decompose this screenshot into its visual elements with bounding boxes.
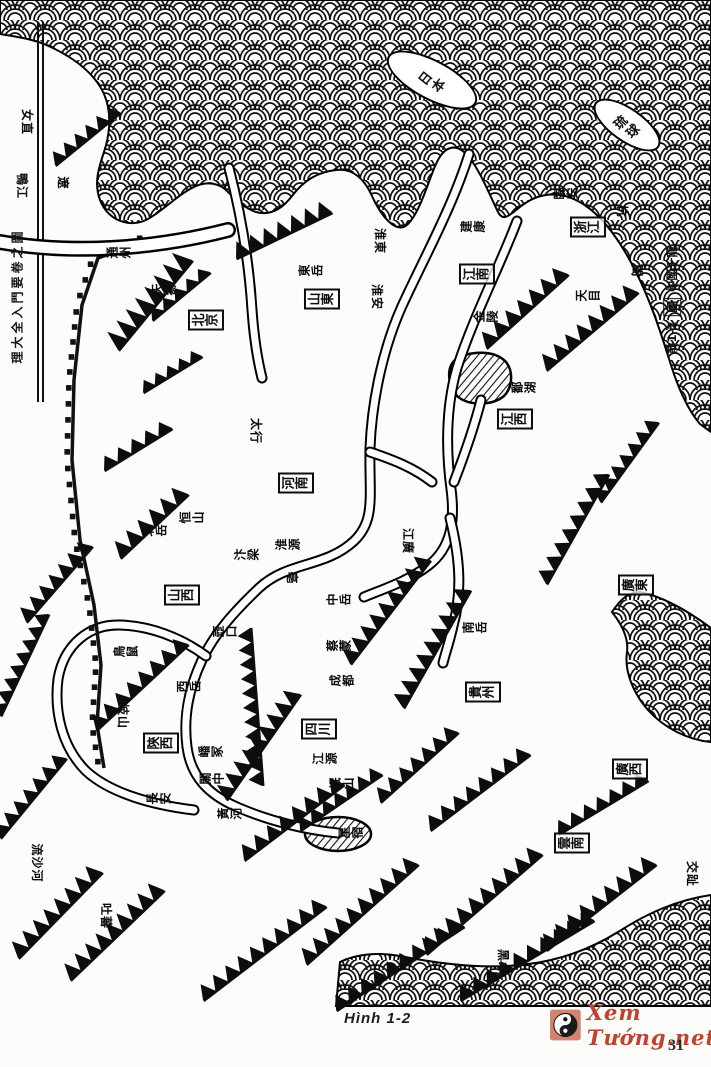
province-box-label: 北京 [188, 310, 224, 331]
place-label: 通州 [106, 246, 132, 258]
china-thousand-dragons-map: 理大全入門要卷之圖 前1-2 圖 中國千龍 北京山東江南浙江江西河南山西陝西四川… [0, 0, 711, 1015]
place-label: 亳 [286, 571, 298, 584]
margin-note-boxed-char: 圖 [663, 298, 681, 316]
place-label: 關中 [199, 772, 225, 784]
place-label: 鴨江 [16, 173, 28, 199]
book-spine-title: 理大全入門要卷之圖 [9, 228, 26, 363]
place-label: 金陵 [473, 310, 499, 322]
place-label: 黃河 [217, 807, 243, 819]
place-label: 交趾 [686, 861, 698, 887]
place-label: 吐蕃 [100, 903, 112, 929]
place-label: 江廣 [402, 528, 414, 554]
watermark-site-name: Xem Tướng.net [587, 1000, 711, 1050]
place-label: 星宿 [338, 826, 364, 838]
figure-margin-note: 前1-2 圖 中國千龍 [663, 246, 681, 354]
place-label: 壺口 [212, 625, 238, 637]
place-label: 南岳 [462, 621, 488, 633]
place-label: 鳥鼠 [113, 645, 139, 657]
place-label: 西岳 [176, 680, 202, 692]
watermark: Xem Tướng.net [550, 1000, 711, 1050]
place-label: 淮安 [371, 284, 383, 310]
province-box-label: 貴州 [465, 682, 501, 703]
place-label: 東岳 [298, 264, 324, 276]
place-label: 淮源 [275, 538, 301, 550]
place-label: 遼 [57, 176, 69, 189]
place-label: 成都 [329, 674, 355, 686]
place-label: 長安 [146, 792, 172, 804]
yin-yang-logo-icon [550, 1004, 581, 1046]
place-label: 太行 [250, 418, 262, 444]
place-label: 閩 [631, 264, 643, 277]
island-label: 琉球 [585, 89, 668, 162]
province-box-label: 江西 [497, 409, 533, 430]
margin-note-prefix: 前1-2 [665, 322, 679, 354]
province-box-label: 浙江 [570, 217, 606, 238]
place-label: 臨安 [553, 187, 579, 199]
place-label: 江源 [312, 752, 338, 764]
map-labels: 理大全入門要卷之圖 前1-2 圖 中國千龍 北京山東江南浙江江西河南山西陝西四川… [0, 0, 711, 1015]
place-label: 中岳 [326, 593, 352, 605]
place-label: 嶓冢 [198, 745, 224, 757]
page-number: 31 [668, 1037, 684, 1055]
place-label: 岐山 [117, 703, 129, 729]
place-label: 鄱湖 [511, 381, 537, 393]
province-box-label: 陝西 [143, 733, 179, 754]
province-box-label: 廣西 [612, 759, 648, 780]
province-box-label: 江南 [459, 264, 495, 285]
place-label: 天目 [575, 289, 601, 301]
place-label: 汴梁 [234, 548, 260, 560]
place-label: 恒山 [179, 511, 205, 523]
place-label: 北岳 [142, 524, 168, 536]
scanned-book-page: 理大全入門要卷之圖 前1-2 圖 中國千龍 北京山東江南浙江江西河南山西陝西四川… [0, 0, 711, 1067]
province-box-label: 山東 [304, 289, 340, 310]
place-label: 岷山 [329, 777, 355, 789]
figure-caption: Hình 1-2 [344, 1010, 411, 1027]
place-label: 女直 [21, 109, 33, 135]
place-label: 建康 [460, 220, 486, 232]
province-box-label: 廣東 [618, 575, 654, 596]
margin-note-suffix: 中國千龍 [665, 246, 679, 292]
place-label: 黑水 [497, 949, 509, 975]
place-label: 流沙河 [31, 843, 43, 882]
island-label: 日本 [378, 39, 485, 121]
place-label: 天壽 [151, 283, 177, 295]
province-box-label: 雲南 [554, 833, 590, 854]
province-box-label: 山西 [164, 585, 200, 606]
place-label: 蔡蒙 [326, 639, 352, 651]
place-label: 淮東 [374, 228, 386, 254]
province-box-label: 四川 [301, 719, 337, 740]
province-box-label: 河南 [278, 473, 314, 494]
place-label: 杭 [616, 204, 628, 217]
